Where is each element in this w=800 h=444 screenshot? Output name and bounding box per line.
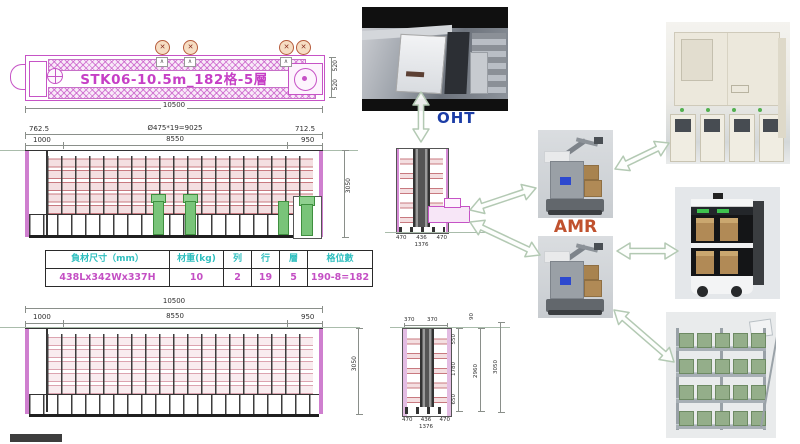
dim-value: 470 — [440, 417, 451, 423]
status-dot — [680, 108, 684, 112]
dim-value: 1376 — [417, 424, 435, 430]
section-body — [402, 328, 452, 417]
crane-mast — [420, 329, 434, 407]
amr-carried-box — [582, 265, 599, 280]
load-port — [428, 206, 470, 223]
green-box — [715, 385, 730, 400]
amr-gripper — [594, 137, 603, 144]
dim-value: 1376 — [413, 242, 431, 248]
amr-body — [550, 261, 584, 299]
ground-line — [385, 232, 485, 233]
oht-label: OHT — [437, 109, 476, 127]
dim-seg-c: 650 — [452, 394, 458, 405]
amr-photo-2 — [538, 236, 613, 318]
green-box — [679, 333, 694, 348]
led-chip — [697, 209, 709, 213]
cart-wheel — [697, 286, 708, 297]
load-port-unit — [729, 114, 755, 162]
dim-line-total — [25, 308, 323, 309]
dim-seg-a: 550 — [452, 334, 458, 345]
cart-box — [720, 218, 738, 241]
bottom-view: 10500 1000 8550 950 3050 — [0, 0, 370, 444]
green-box — [733, 411, 748, 426]
green-box — [751, 385, 766, 400]
section-bottom-dims: 470 436 470 — [396, 235, 447, 241]
dim-gap: 90 — [470, 313, 476, 320]
outer-total-line — [500, 322, 501, 413]
green-box — [715, 411, 730, 426]
amr-base — [546, 199, 604, 212]
dim-seg-b: 1780 — [452, 362, 458, 376]
green-box — [751, 333, 766, 348]
amr-body — [550, 161, 584, 199]
green-box — [733, 385, 748, 400]
shelf-band-left — [407, 331, 420, 403]
dim-value: 470 — [396, 235, 407, 241]
oht-scene — [362, 28, 508, 99]
green-box — [679, 385, 694, 400]
inner-total-line — [480, 328, 481, 412]
green-box — [679, 359, 694, 374]
load-port-unit — [670, 114, 696, 162]
dim-value: 436 — [416, 235, 427, 241]
status-dots — [680, 108, 776, 112]
dim-total: 10500 — [25, 298, 323, 305]
tool-door — [681, 39, 713, 81]
dim-value: 470 — [402, 417, 413, 423]
amr-carried-box — [584, 180, 602, 197]
dim-value: 370 — [404, 317, 415, 323]
green-box — [697, 359, 712, 374]
shelf-boxes — [679, 385, 766, 400]
dim-outer-total: 3050 — [494, 360, 500, 374]
rack-side-right — [319, 329, 323, 414]
cart-led-strip — [691, 207, 753, 215]
port-screen — [734, 119, 750, 132]
amr-base — [546, 299, 604, 312]
shelf-level — [676, 424, 766, 429]
section-upper: 470 436 470 1376 — [380, 140, 490, 255]
dim-inner-total: 2960 — [474, 364, 480, 378]
cart-shelf-1 — [691, 215, 753, 243]
shelf-band-right — [434, 331, 447, 403]
tool-marks — [731, 85, 749, 93]
cart-box — [696, 218, 714, 241]
flow-arrow — [612, 136, 673, 176]
rack-frame — [676, 328, 766, 430]
cart-side-panel — [753, 201, 764, 285]
green-box — [697, 411, 712, 426]
amr-photo-1 — [538, 130, 613, 218]
shelf-level — [676, 372, 766, 377]
cart-cap — [691, 199, 753, 207]
dim-value: 10500 — [161, 297, 187, 305]
oht-vehicle — [395, 34, 446, 94]
amr-screen — [560, 177, 571, 185]
cart-wheel — [731, 286, 742, 297]
dim-line-row2 — [25, 323, 323, 324]
led-chip — [717, 209, 729, 213]
amr-screen — [560, 277, 571, 285]
shelf-boxes — [679, 333, 766, 348]
green-box — [697, 333, 712, 348]
chain-dim-line — [458, 328, 459, 412]
rack-shelf-grid — [47, 334, 313, 394]
green-box — [751, 359, 766, 374]
port-screen — [675, 119, 691, 132]
cart-shelf-2 — [691, 248, 753, 276]
machinery-mid — [470, 52, 488, 94]
amr-carried-box — [582, 165, 599, 180]
shelf-band-left — [400, 151, 413, 223]
process-tool-photo — [666, 22, 790, 164]
shelf-boxes — [679, 411, 766, 426]
dark-column — [444, 32, 469, 94]
dim-value: 370 — [427, 317, 438, 323]
amr-label: AMR — [538, 217, 613, 237]
bottom-edge-bar — [10, 434, 62, 442]
status-dot — [706, 108, 710, 112]
green-box — [733, 359, 748, 374]
shelf-boxes — [679, 359, 766, 374]
cart-body — [691, 199, 753, 289]
rack-legs — [29, 394, 319, 417]
section-bottom-dims: 470 436 470 — [402, 417, 450, 423]
green-box — [697, 385, 712, 400]
tool-side-panel — [778, 38, 786, 138]
section-base — [405, 407, 449, 414]
tool-body — [674, 32, 780, 106]
amr-gripper — [594, 243, 603, 250]
storage-rack-photo — [666, 312, 776, 438]
cart-box — [720, 251, 738, 274]
load-port-top — [444, 198, 461, 208]
top-dim-line — [404, 325, 448, 326]
vehicle-marks — [406, 71, 424, 77]
dim-value: 8550 — [164, 312, 186, 320]
shelf-cart-photo — [675, 187, 780, 299]
green-box — [733, 333, 748, 348]
bottom-rack — [25, 328, 323, 416]
dim-tick — [63, 320, 64, 327]
section-bottom-total: 1376 — [402, 425, 450, 431]
oht-photo — [362, 7, 508, 111]
shelf-level — [676, 398, 766, 403]
port-screen — [704, 119, 720, 132]
status-dot — [732, 108, 736, 112]
green-box — [715, 359, 730, 374]
dim-right: 950 — [300, 314, 315, 321]
cart-box — [696, 251, 714, 274]
dim-left: 1000 — [32, 314, 52, 321]
cart-base — [691, 276, 753, 294]
port-screen — [763, 119, 779, 132]
bottom-height-dim: 3050 — [352, 356, 358, 371]
green-box — [679, 411, 694, 426]
status-dot — [758, 108, 762, 112]
dim-tick — [287, 320, 288, 327]
load-port-unit — [700, 114, 726, 162]
amr-carried-box — [584, 280, 602, 297]
stocker-system-diagram: STK06-10.5m_182格-5層 ✕ ✕ ✕ ✕ ∧ ∧ ∧ 10500 … — [0, 0, 800, 444]
section-lower: 370 370 90 550 1780 650 2960 3050 470 43… — [385, 305, 515, 440]
section-edge-left — [397, 149, 399, 233]
bottom-height-line — [358, 328, 359, 415]
dim-value: 436 — [421, 417, 432, 423]
section-bottom-total: 1376 — [396, 243, 447, 249]
flow-arrow — [617, 243, 678, 259]
load-ports — [670, 114, 784, 162]
shelf-level — [676, 346, 766, 351]
green-box — [715, 333, 730, 348]
dim-center: 8550 — [63, 313, 287, 320]
dim-value: 470 — [437, 235, 448, 241]
tool-seam — [727, 33, 728, 105]
